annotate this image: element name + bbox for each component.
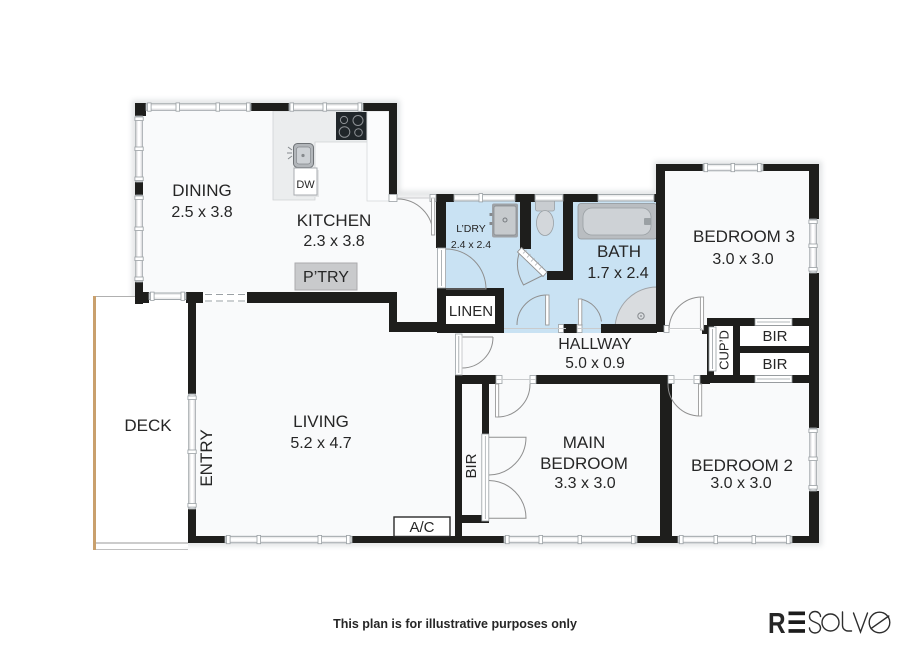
svg-text:CUP’D: CUP’D [717, 330, 732, 370]
svg-text:BEDROOM: BEDROOM [540, 454, 628, 473]
svg-text:BIR: BIR [762, 356, 787, 373]
svg-text:P’TRY: P’TRY [303, 269, 349, 286]
svg-text:3.3 x 3.0: 3.3 x 3.0 [554, 475, 615, 492]
svg-text:5.0 x 0.9: 5.0 x 0.9 [565, 355, 624, 372]
svg-text:This plan is for illustrative: This plan is for illustrative purposes o… [333, 617, 577, 631]
svg-text:3.0 x 3.0: 3.0 x 3.0 [710, 475, 771, 492]
svg-text:BIR: BIR [463, 453, 480, 478]
svg-text:3.0 x 3.0: 3.0 x 3.0 [712, 251, 773, 268]
svg-text:KITCHEN: KITCHEN [297, 211, 372, 230]
svg-text:MAIN: MAIN [563, 433, 606, 452]
svg-text:BEDROOM 3: BEDROOM 3 [693, 227, 795, 246]
svg-text:5.2 x 4.7: 5.2 x 4.7 [290, 435, 351, 452]
svg-text:DW: DW [296, 179, 315, 191]
svg-text:R: R [768, 607, 786, 639]
svg-text:DINING: DINING [172, 181, 232, 200]
svg-text:2.4 x 2.4: 2.4 x 2.4 [451, 239, 491, 251]
svg-text:L’DRY: L’DRY [456, 223, 486, 235]
svg-text:2.3 x 3.8: 2.3 x 3.8 [303, 233, 364, 250]
svg-text:LINEN: LINEN [449, 303, 493, 320]
svg-text:HALLWAY: HALLWAY [558, 336, 632, 353]
svg-text:BIR: BIR [762, 328, 787, 345]
svg-text:1.7 x 2.4: 1.7 x 2.4 [587, 265, 648, 282]
svg-text:LIVING: LIVING [293, 412, 349, 431]
svg-text:DECK: DECK [124, 416, 172, 435]
svg-text:2.5 x 3.8: 2.5 x 3.8 [171, 204, 232, 221]
svg-text:A/C: A/C [409, 519, 434, 536]
svg-text:BATH: BATH [597, 242, 641, 261]
svg-text:BEDROOM 2: BEDROOM 2 [691, 456, 793, 475]
svg-text:ENTRY: ENTRY [197, 429, 216, 486]
